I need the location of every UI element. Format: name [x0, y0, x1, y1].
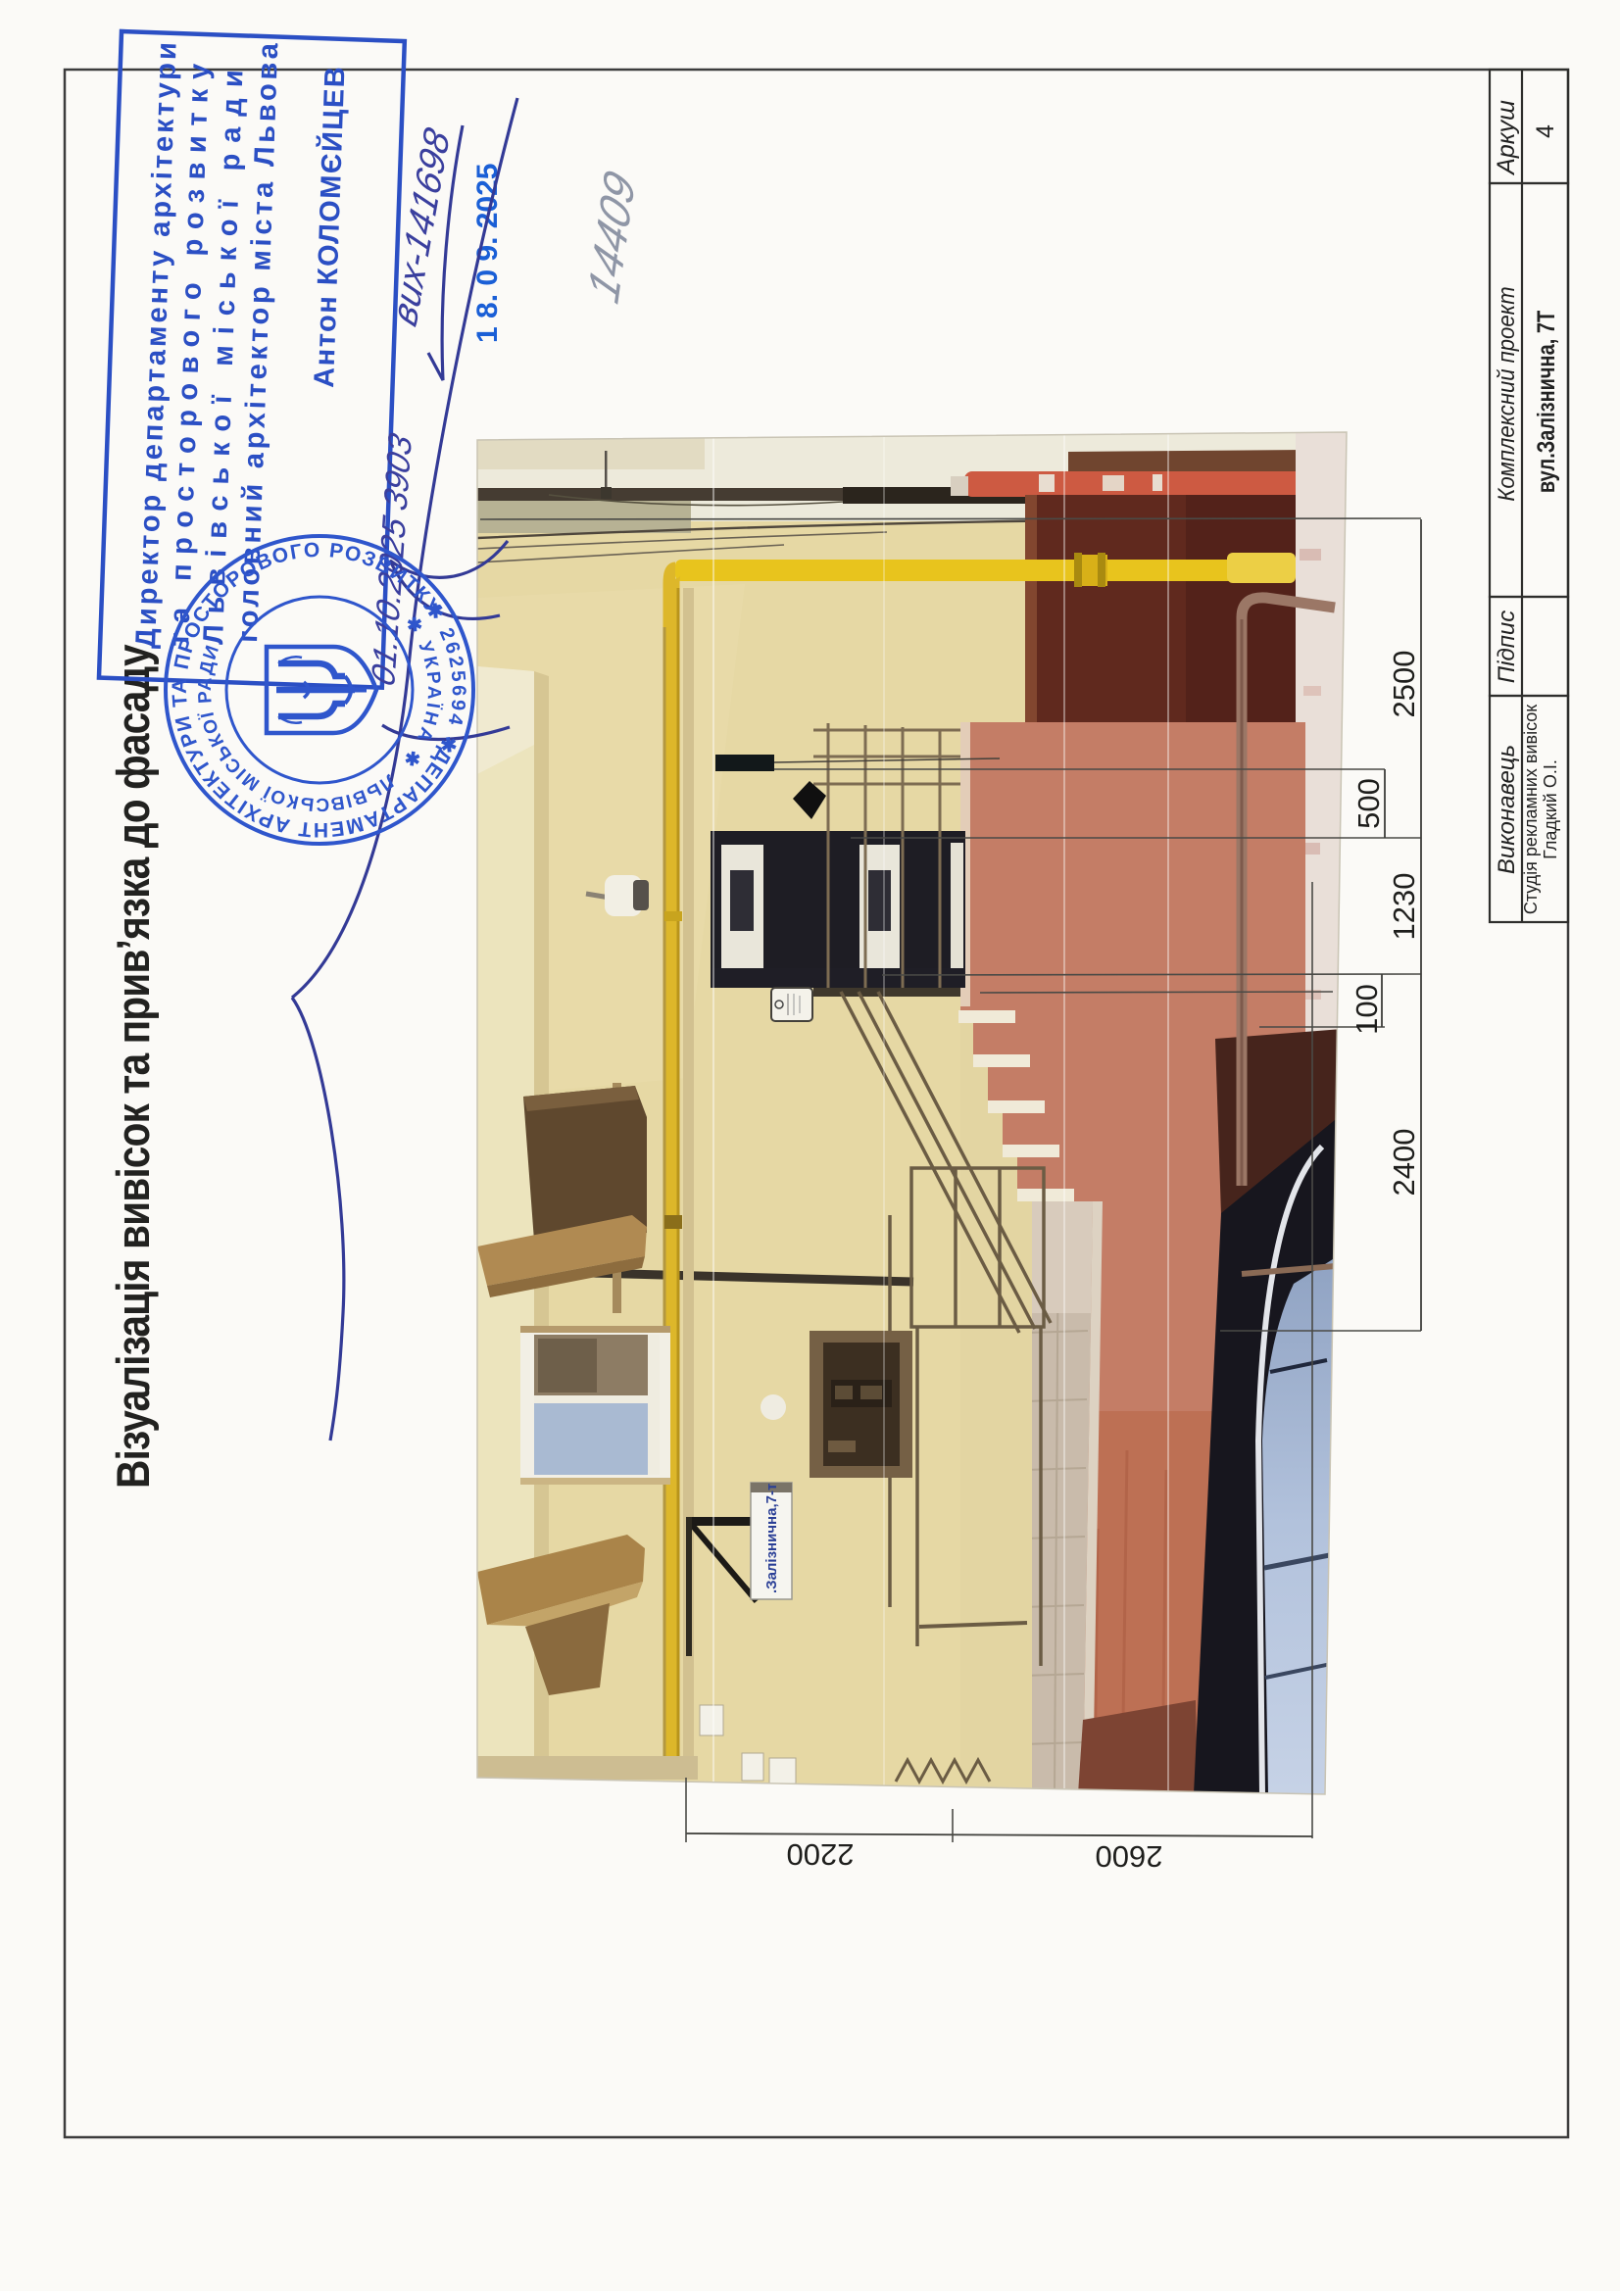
svg-text:4: 4: [1532, 124, 1559, 138]
svg-text:вул.Залізнична, 7Т: вул.Залізнична, 7Т: [1533, 311, 1560, 493]
svg-text:100: 100: [1350, 984, 1384, 1035]
svg-text:Підпис: Підпис: [1494, 611, 1520, 684]
svg-text:2500: 2500: [1387, 651, 1421, 718]
svg-text:.Залізнична,7-т: .Залізнична,7-т: [763, 1484, 780, 1593]
svg-text:500: 500: [1351, 778, 1386, 829]
svg-text:Виконавець: Виконавець: [1494, 745, 1520, 874]
svg-text:Комплексний проект: Комплексний проект: [1493, 286, 1519, 501]
svg-text:2200: 2200: [787, 1837, 855, 1872]
svg-text:1 8. 0 9. 2025: 1 8. 0 9. 2025: [471, 164, 504, 344]
svg-text:1230: 1230: [1387, 873, 1421, 941]
svg-text:Аркуш: Аркуш: [1493, 100, 1520, 176]
svg-text:Студія рекламних вивісок: Студія рекламних вивісок: [1521, 705, 1541, 914]
svg-text:2600: 2600: [1096, 1839, 1163, 1874]
svg-text:Візуалізація вивісок та привʼ: Візуалізація вивісок та привʼязка до фас…: [108, 644, 159, 1489]
svg-text:2400: 2400: [1387, 1129, 1421, 1197]
svg-text:Гладкий О.І.: Гладкий О.І.: [1541, 759, 1560, 859]
